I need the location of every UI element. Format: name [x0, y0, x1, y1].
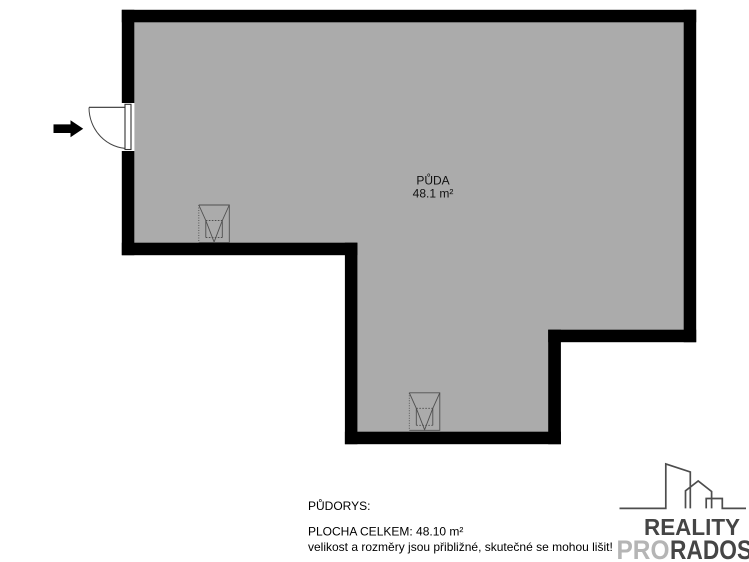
svg-text:PŮDA: PŮDA: [416, 173, 449, 188]
svg-text:48.1 m²: 48.1 m²: [413, 187, 454, 201]
svg-text:PŮDORYS:: PŮDORYS:: [308, 498, 370, 513]
svg-text:PRO: PRO: [617, 535, 670, 562]
svg-text:velikost a rozměry jsou přibli: velikost a rozměry jsou přibližné, skute…: [308, 540, 613, 554]
svg-text:PLOCHA CELKEM: 48.10 m²: PLOCHA CELKEM: 48.10 m²: [308, 525, 463, 539]
svg-text:RADOST: RADOST: [670, 535, 749, 562]
